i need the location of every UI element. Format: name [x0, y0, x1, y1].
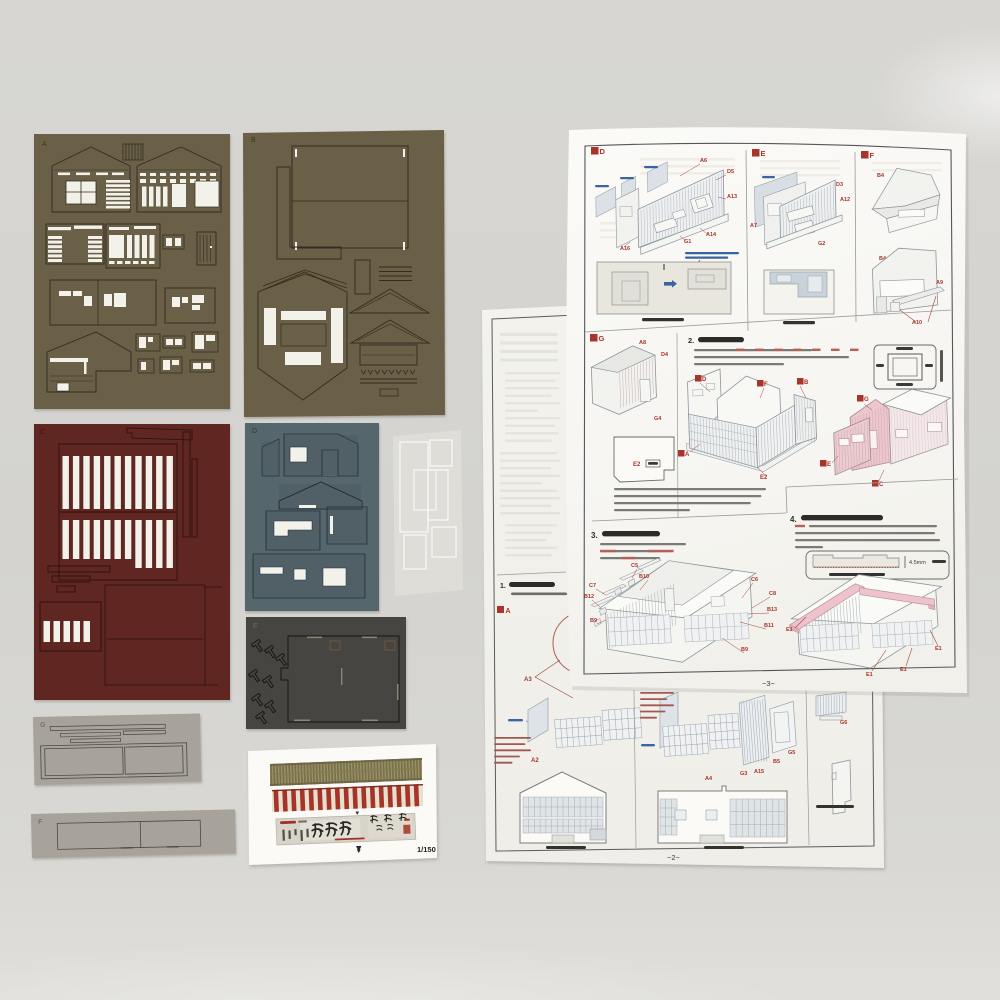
svg-text:B13: B13 [767, 607, 777, 613]
svg-text:B5: B5 [773, 759, 780, 765]
svg-text:G2: G2 [818, 241, 825, 247]
svg-text:G: G [599, 334, 605, 343]
svg-text:C5: C5 [631, 563, 638, 569]
svg-text:G5: G5 [788, 750, 795, 756]
svg-text:B: B [251, 137, 256, 144]
svg-text:C6: C6 [751, 577, 758, 583]
svg-text:G: G [40, 722, 45, 729]
svg-text:A15: A15 [754, 769, 764, 775]
svg-text:G6: G6 [840, 720, 847, 726]
svg-text:A: A [685, 452, 690, 458]
svg-text:E: E [253, 623, 258, 630]
svg-text:B9: B9 [590, 618, 597, 624]
svg-text:D4: D4 [661, 352, 669, 358]
svg-text:2.: 2. [688, 336, 694, 345]
svg-text:D: D [252, 428, 257, 435]
svg-text:F: F [870, 151, 875, 160]
svg-text:G4: G4 [654, 416, 662, 422]
svg-text:F: F [38, 819, 42, 826]
svg-text:−3−: −3− [762, 679, 776, 688]
svg-text:F: F [764, 382, 768, 388]
svg-text:3.: 3. [591, 531, 598, 540]
svg-text:−2−: −2− [667, 853, 681, 862]
svg-text:D: D [600, 147, 606, 156]
svg-text:E1: E1 [866, 672, 873, 678]
svg-text:A4: A4 [705, 776, 713, 782]
svg-text:C: C [40, 429, 45, 436]
svg-text:A9: A9 [936, 280, 943, 286]
svg-text:B12: B12 [584, 594, 594, 600]
svg-text:C8: C8 [769, 591, 776, 597]
svg-text:G1: G1 [684, 239, 691, 245]
svg-text:E2: E2 [760, 475, 768, 481]
svg-text:A12: A12 [840, 197, 850, 203]
svg-text:B11: B11 [764, 623, 774, 629]
svg-text:E2: E2 [633, 462, 641, 468]
svg-text:B: B [804, 380, 809, 386]
svg-text:4.5mm: 4.5mm [909, 560, 926, 566]
svg-text:A7: A7 [750, 223, 757, 229]
svg-text:A14: A14 [706, 232, 717, 238]
svg-text:D5: D5 [727, 169, 734, 175]
svg-text:A16: A16 [620, 246, 630, 252]
svg-text:A: A [506, 608, 511, 615]
svg-text:E1: E1 [786, 627, 793, 633]
svg-text:E: E [827, 462, 831, 468]
svg-text:C7: C7 [589, 583, 596, 589]
svg-text:1.: 1. [500, 583, 506, 590]
svg-text:4.: 4. [790, 515, 797, 524]
svg-text:B4: B4 [877, 173, 885, 179]
svg-text:A2: A2 [531, 758, 539, 764]
svg-text:B10: B10 [639, 574, 649, 580]
svg-text:E1: E1 [935, 646, 942, 652]
svg-text:A13: A13 [727, 194, 737, 200]
svg-text:E: E [761, 149, 766, 158]
svg-text:1/150: 1/150 [417, 845, 436, 854]
svg-text:G: G [864, 397, 869, 403]
svg-text:A10: A10 [912, 320, 922, 326]
svg-text:A6: A6 [700, 158, 707, 164]
svg-text:G3: G3 [740, 771, 747, 777]
svg-text:A8: A8 [639, 340, 646, 346]
svg-text:D3: D3 [836, 182, 843, 188]
svg-text:B9: B9 [741, 647, 748, 653]
svg-text:A: A [42, 141, 47, 148]
svg-text:E1: E1 [900, 667, 907, 673]
svg-text:A3: A3 [524, 677, 532, 683]
svg-text:D: D [702, 377, 707, 383]
